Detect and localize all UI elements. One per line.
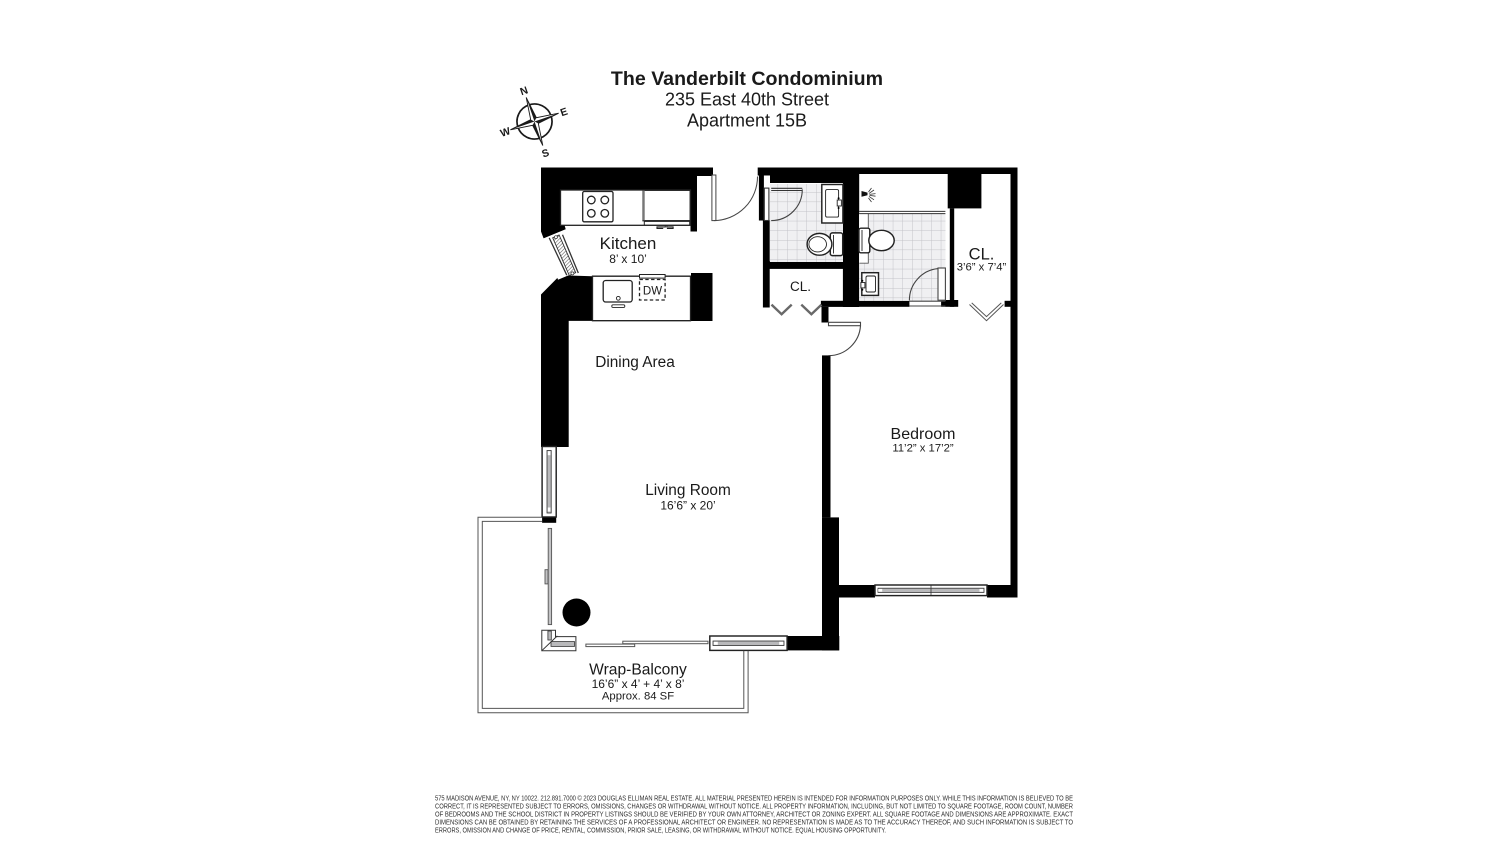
svg-text:S: S [540,147,551,161]
svg-text:Wrap-Balcony: Wrap-Balcony [589,662,687,679]
svg-text:Apartment 15B: Apartment 15B [687,111,807,131]
svg-text:W: W [499,125,512,140]
svg-text:E: E [559,106,570,120]
svg-text:16’6” x 20’: 16’6” x 20’ [660,499,715,513]
svg-text:CL.: CL. [790,279,811,294]
svg-text:Dining Area: Dining Area [595,354,675,371]
svg-text:16’6” x 4’ + 4’ x 8’: 16’6” x 4’ + 4’ x 8’ [592,677,685,691]
svg-text:The Vanderbilt Condominium: The Vanderbilt Condominium [611,68,883,90]
svg-text:Living Room: Living Room [645,482,731,499]
svg-text:Approx. 84 SF: Approx. 84 SF [602,691,674,703]
svg-text:235 East 40th Street: 235 East 40th Street [665,90,829,110]
svg-text:Bedroom: Bedroom [891,426,956,443]
svg-text:ERRORS, OMISSION AND CHANGE OF: ERRORS, OMISSION AND CHANGE OF PRICE, RE… [435,826,886,835]
svg-text:11’2” x 17’2”: 11’2” x 17’2” [892,443,954,455]
svg-text:N: N [519,84,530,98]
svg-text:DW: DW [643,286,662,298]
svg-text:Kitchen: Kitchen [600,234,657,253]
svg-text:8’ x 10’: 8’ x 10’ [609,252,647,266]
svg-text:3’6” x 7’4”: 3’6” x 7’4” [957,261,1007,273]
